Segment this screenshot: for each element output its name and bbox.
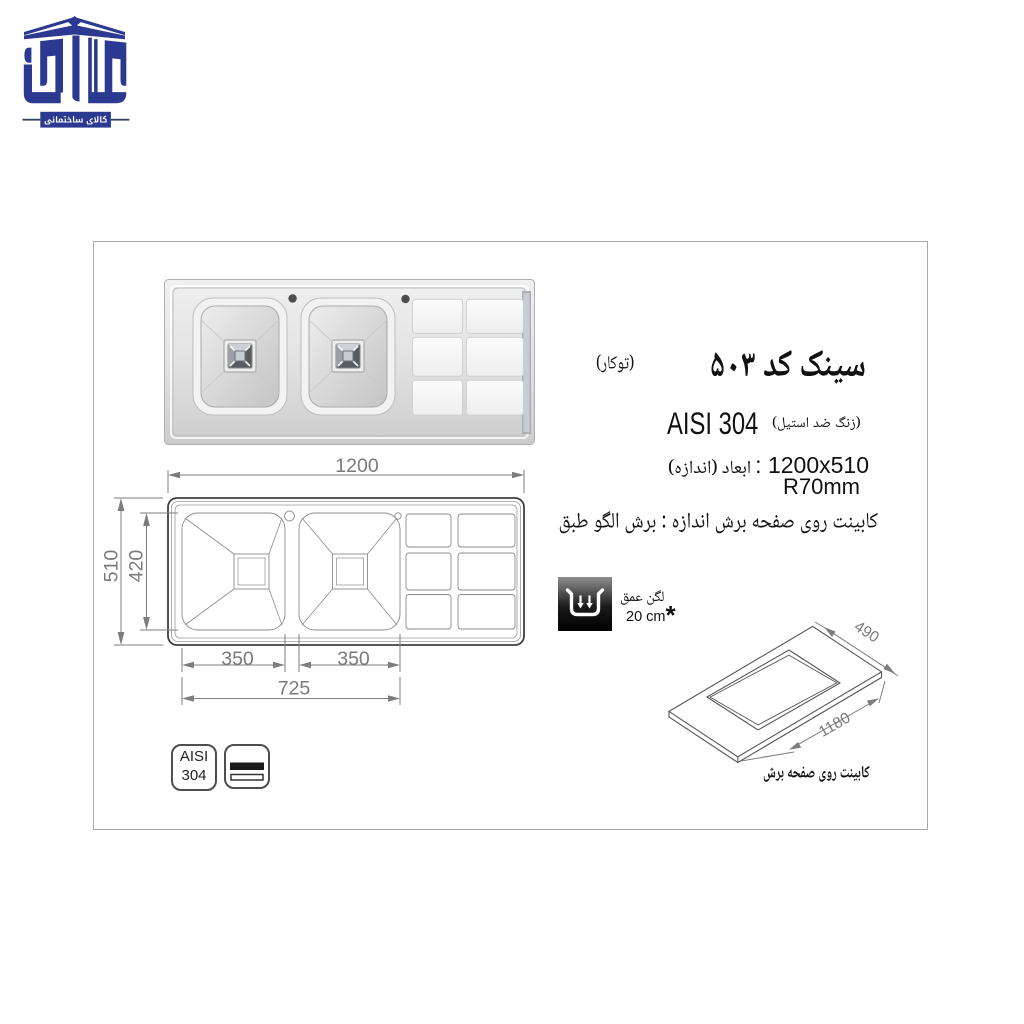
svg-text:کالای ساختمانی: کالای ساختمانی (44, 113, 107, 129)
svg-text:350: 350 (337, 648, 370, 670)
svg-text:510: 510 (101, 550, 123, 583)
svg-text:725: 725 (278, 678, 311, 700)
svg-text:1180: 1180 (816, 709, 854, 741)
svg-text:1200: 1200 (335, 455, 379, 477)
svg-text:420: 420 (126, 550, 148, 583)
svg-text:350: 350 (221, 648, 254, 670)
svg-text:490: 490 (851, 618, 882, 647)
